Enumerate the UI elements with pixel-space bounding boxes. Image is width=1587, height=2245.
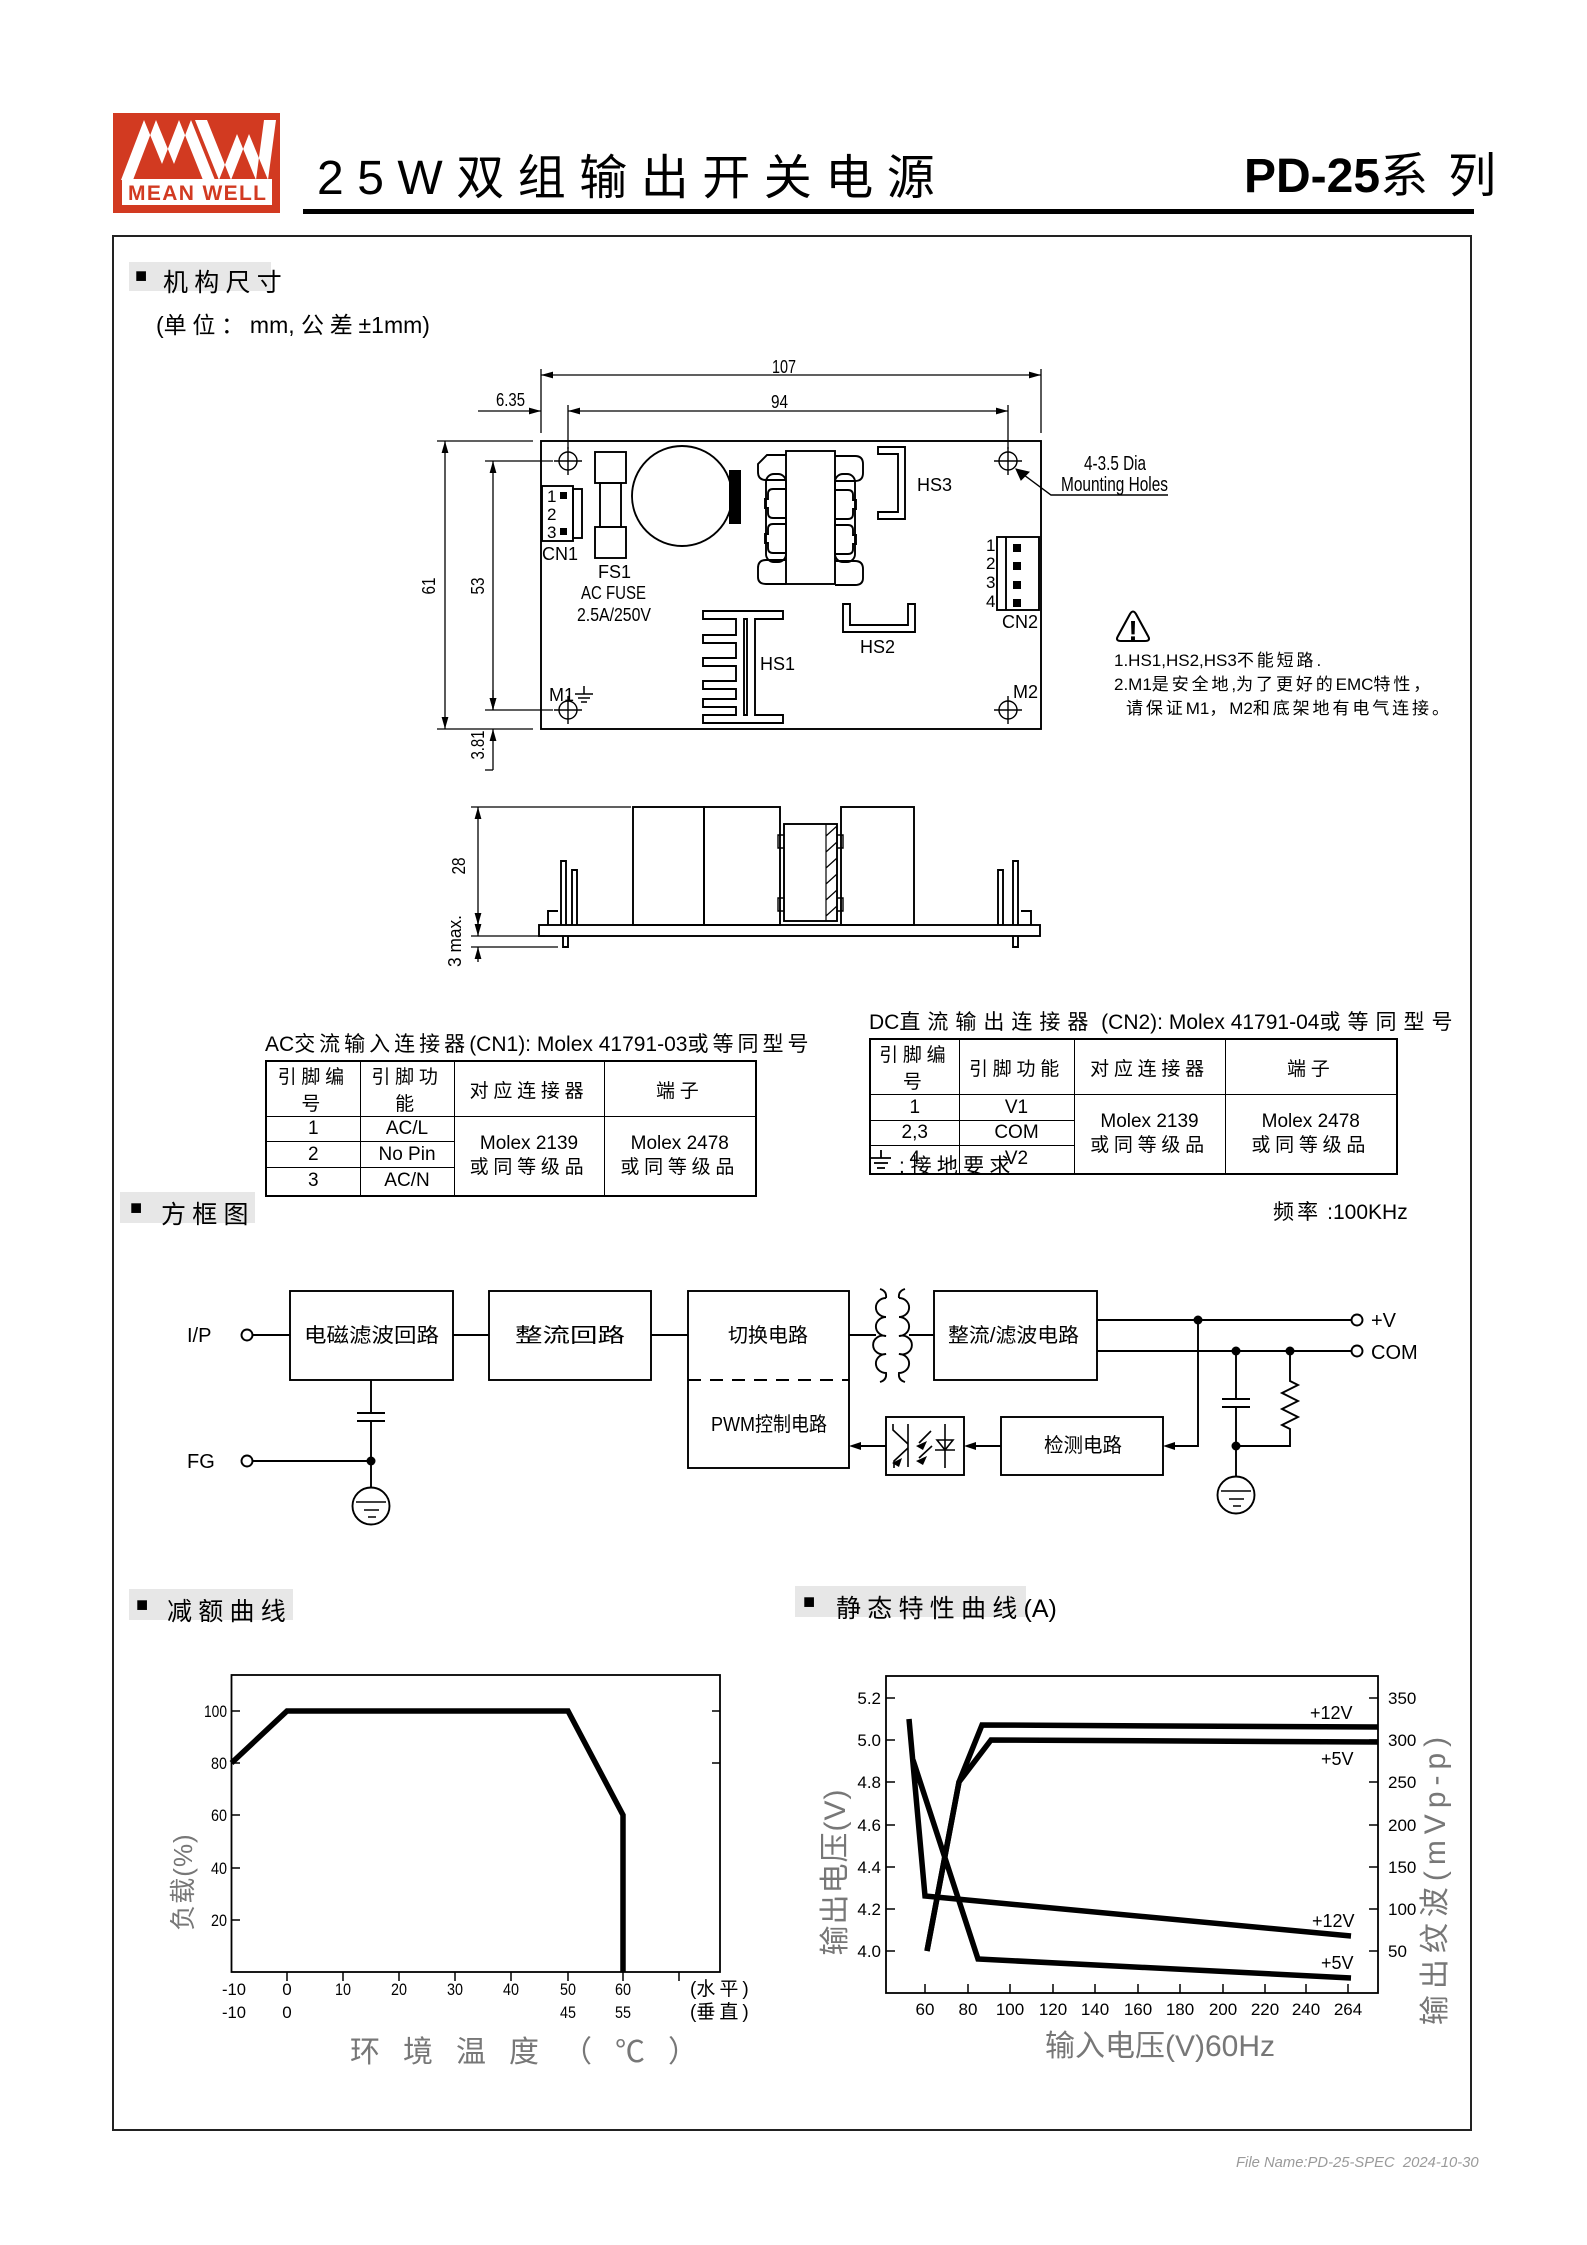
svg-text:AC FUSE: AC FUSE — [581, 583, 646, 603]
svg-text:4: 4 — [986, 592, 995, 611]
svg-text:100: 100 — [996, 2000, 1024, 2019]
svg-text:107: 107 — [772, 357, 796, 377]
svg-text:切换电路: 切换电路 — [728, 1324, 808, 1347]
svg-text:M1: M1 — [549, 685, 574, 705]
svg-text:输出纹波(mVp-p): 输出纹波(mVp-p) — [1419, 1731, 1452, 2025]
svg-text:1: 1 — [986, 536, 995, 555]
svg-text:60: 60 — [916, 2000, 935, 2019]
svg-text:50: 50 — [1388, 1942, 1407, 1961]
svg-text:检测电路: 检测电路 — [1044, 1434, 1122, 1457]
svg-text:!: ! — [1128, 615, 1137, 646]
svg-text:1: 1 — [547, 487, 556, 506]
svg-text:FS1: FS1 — [598, 562, 631, 582]
svg-text:电磁滤波回路: 电磁滤波回路 — [304, 1324, 439, 1347]
svg-text:HS1: HS1 — [760, 654, 795, 674]
svg-text:环境温度（℃）: 环境温度（℃） — [350, 2036, 721, 2069]
svg-text:输出电压(V): 输出电压(V) — [819, 1789, 852, 1956]
svg-text:0: 0 — [282, 2003, 291, 2022]
svg-text:180: 180 — [1166, 2000, 1194, 2019]
svg-text:COM: COM — [1371, 1342, 1418, 1364]
svg-text:2: 2 — [547, 505, 556, 524]
svg-text:264: 264 — [1334, 2000, 1362, 2019]
svg-text:220: 220 — [1251, 2000, 1279, 2019]
svg-text:4.2: 4.2 — [857, 1900, 881, 1919]
svg-text:2: 2 — [986, 554, 995, 573]
svg-text:M2: M2 — [1013, 682, 1038, 702]
svg-text:28: 28 — [449, 858, 469, 875]
svg-text:4.8: 4.8 — [857, 1773, 881, 1792]
svg-text:+5V: +5V — [1321, 1953, 1354, 1973]
svg-text:PWM控制电路: PWM控制电路 — [711, 1413, 827, 1436]
svg-text:94: 94 — [771, 392, 788, 412]
svg-text:+12V: +12V — [1310, 1703, 1353, 1723]
svg-text:(垂直): (垂直) — [690, 2001, 749, 2023]
svg-text:300: 300 — [1388, 1731, 1416, 1750]
svg-text:0: 0 — [282, 1980, 291, 1999]
svg-text:CN1: CN1 — [542, 544, 578, 564]
svg-text:5.2: 5.2 — [857, 1689, 881, 1708]
svg-text:2.M1是安全地,为了更好的EMC特性，: 2.M1是安全地,为了更好的EMC特性， — [1114, 675, 1433, 694]
svg-text:10: 10 — [335, 1980, 351, 1999]
svg-text:5.0: 5.0 — [857, 1731, 881, 1750]
svg-text:20: 20 — [211, 1911, 227, 1930]
svg-text:60: 60 — [615, 1980, 631, 1999]
svg-text:53: 53 — [468, 578, 488, 595]
svg-text:80: 80 — [211, 1754, 227, 1773]
svg-text:1.HS1,HS2,HS3不能短路.: 1.HS1,HS2,HS3不能短路. — [1114, 651, 1321, 670]
svg-text:-10: -10 — [222, 1980, 246, 1999]
svg-text:200: 200 — [1388, 1816, 1416, 1835]
svg-text:60: 60 — [211, 1806, 227, 1825]
svg-text:30: 30 — [447, 1980, 463, 1999]
svg-text:FG: FG — [187, 1451, 215, 1473]
svg-text:3 max.: 3 max. — [445, 915, 465, 967]
svg-text:+V: +V — [1371, 1310, 1397, 1332]
svg-text:4.4: 4.4 — [857, 1858, 881, 1877]
svg-text:160: 160 — [1124, 2000, 1152, 2019]
svg-text:40: 40 — [503, 1980, 519, 1999]
svg-text:240: 240 — [1292, 2000, 1320, 2019]
svg-text:20: 20 — [391, 1980, 407, 1999]
svg-text:6.35: 6.35 — [496, 390, 525, 410]
svg-text:250: 250 — [1388, 1773, 1416, 1792]
svg-text:4-3.5 Dia: 4-3.5 Dia — [1084, 453, 1147, 475]
svg-text:140: 140 — [1081, 2000, 1109, 2019]
svg-text:HS2: HS2 — [860, 637, 895, 657]
svg-text:40: 40 — [211, 1859, 227, 1878]
svg-text:200: 200 — [1209, 2000, 1237, 2019]
svg-text:120: 120 — [1039, 2000, 1067, 2019]
svg-text:80: 80 — [959, 2000, 978, 2019]
svg-text:61: 61 — [419, 578, 439, 595]
svg-text:请保证M1，M2和底架地有电气连接。: 请保证M1，M2和底架地有电气连接。 — [1126, 699, 1452, 718]
svg-text:100: 100 — [204, 1702, 227, 1721]
svg-text:HS3: HS3 — [917, 475, 952, 495]
svg-text:整流/滤波电路: 整流/滤波电路 — [948, 1324, 1079, 1347]
svg-text:4.6: 4.6 — [857, 1816, 881, 1835]
svg-text:输入电压(V)60Hz: 输入电压(V)60Hz — [1045, 2030, 1275, 2063]
svg-text:I/P: I/P — [187, 1325, 211, 1347]
svg-text:+12V: +12V — [1312, 1911, 1355, 1931]
svg-text:CN2: CN2 — [1002, 612, 1038, 632]
svg-text:55: 55 — [615, 2003, 631, 2022]
svg-text:整流回路: 整流回路 — [515, 1324, 625, 1347]
svg-text:100: 100 — [1388, 1900, 1416, 1919]
svg-text:3.81: 3.81 — [468, 731, 488, 760]
svg-text:Mounting Holes: Mounting Holes — [1061, 474, 1168, 496]
svg-text:3: 3 — [547, 523, 556, 542]
svg-text:(水平): (水平) — [690, 1978, 749, 2000]
svg-text:150: 150 — [1388, 1858, 1416, 1877]
svg-text:50: 50 — [560, 1980, 576, 1999]
svg-text:+5V: +5V — [1321, 1749, 1354, 1769]
svg-text:-10: -10 — [222, 2003, 246, 2022]
svg-text:45: 45 — [560, 2003, 576, 2022]
svg-text:3: 3 — [986, 573, 995, 592]
svg-text:350: 350 — [1388, 1689, 1416, 1708]
svg-text:4.0: 4.0 — [857, 1942, 881, 1961]
svg-text:2.5A/250V: 2.5A/250V — [577, 605, 651, 625]
svg-text:负载(%): 负载(%) — [168, 1833, 198, 1930]
